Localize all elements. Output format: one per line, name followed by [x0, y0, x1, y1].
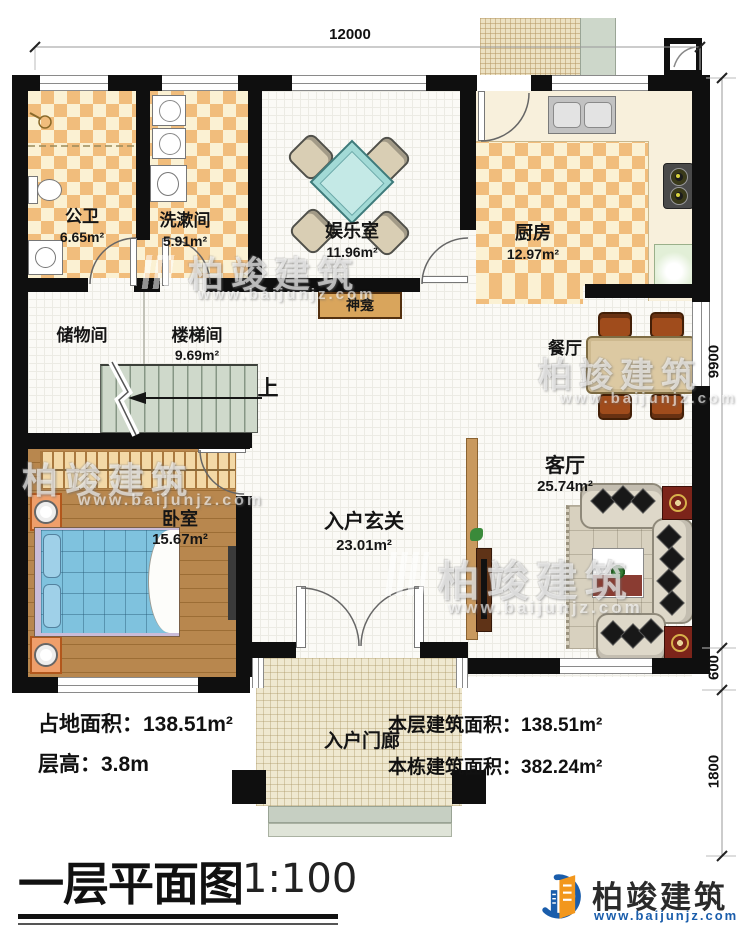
floor-plan: 神龛: [0, 0, 750, 938]
dim-right-main: 9900: [706, 327, 723, 397]
dim-top: 12000: [300, 26, 400, 43]
room-label-game: 娱乐室: [292, 222, 412, 241]
stat-floor-height: 层高：3.8m: [38, 748, 149, 778]
brand-logo-icon: [538, 870, 588, 926]
watermark-url: www.baijunjz.com: [198, 286, 375, 303]
door-arc-bedroom: [200, 450, 244, 494]
room-label-living: 客厅: [510, 456, 620, 477]
watermark-url: www.baijunjz.com: [448, 598, 643, 618]
door-arc-entry-left: [301, 588, 359, 646]
room-area-kitchen: 12.97m²: [483, 247, 583, 261]
dim-right-mid: 600: [706, 638, 723, 698]
title-rule-thin: [18, 923, 338, 925]
room-area-bath: 6.65m²: [37, 230, 127, 244]
stat-building-area: 本栋建筑面积：382.24m²: [388, 752, 602, 779]
watermark-url: www.baijunjz.com: [78, 492, 264, 510]
room-area-wash: 5.91m²: [130, 234, 240, 248]
room-label-wash: 洗漱间: [130, 212, 240, 230]
room-area-foyer: 23.01m²: [302, 538, 426, 553]
door-arc-kitchen: [481, 93, 529, 141]
room-area-stair: 9.69m²: [142, 348, 252, 362]
brand-logo: 柏竣建筑 www.baijunjz.com: [538, 870, 738, 930]
watermark-logo-icon: [142, 255, 177, 289]
watermark-url: www.baijunjz.com: [560, 390, 737, 407]
brand-url: www.baijunjz.com: [594, 908, 738, 923]
stat-floor-area: 本层建筑面积：138.51m²: [388, 710, 602, 737]
room-area-bedroom: 15.67m²: [125, 532, 235, 547]
room-label-dining: 餐厅: [510, 340, 620, 358]
sheet-scale: 1:100: [242, 856, 357, 902]
door-arc-game: [422, 238, 468, 284]
room-label-kitchen: 厨房: [483, 224, 583, 243]
room-label-bedroom: 卧室: [125, 510, 235, 529]
title-rule-thick: [18, 914, 338, 919]
stairs-up-label: 上: [248, 378, 288, 400]
room-area-living: 25.74m²: [510, 479, 620, 494]
dim-right-bottom: 1800: [706, 737, 723, 807]
room-label-bath: 公卫: [37, 208, 127, 226]
room-label-storage: 储物间: [27, 327, 137, 345]
room-label-foyer: 入户玄关: [302, 512, 426, 533]
sheet-title: 一层平面图: [18, 848, 243, 914]
chimney-curve: [674, 47, 695, 67]
watermark-logo-icon: [385, 552, 429, 596]
stat-land-area: 占地面积：138.51m²: [38, 708, 233, 738]
room-area-game: 11.96m²: [292, 245, 412, 259]
room-label-stair: 楼梯间: [142, 327, 252, 345]
